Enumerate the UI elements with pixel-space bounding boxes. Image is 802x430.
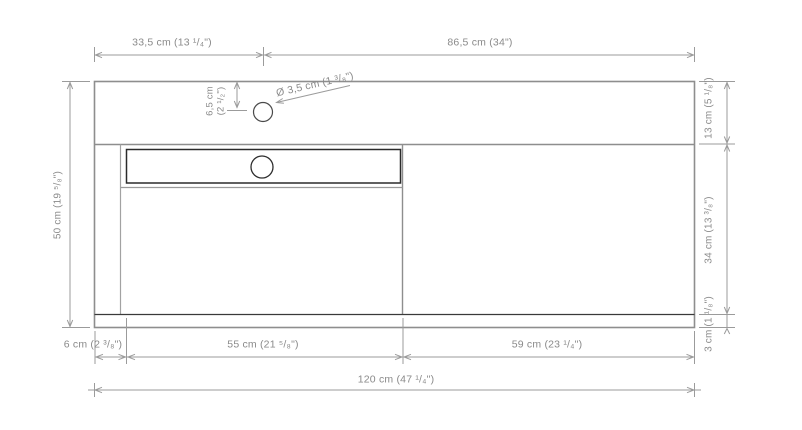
dim-faucet-offset [227,82,247,111]
dim-label-bottom-left: 6 cm (2 ³/₈") [64,340,123,351]
dim-left [62,82,90,328]
dim-label-top-right: 86,5 cm (34") [447,38,512,49]
dim-label-bottom-total: 120 cm (47 ¹/₄") [358,375,435,386]
dim-top [95,47,695,66]
dim-label-top-left: 33,5 cm (13 ¹/₄") [132,38,212,49]
drain-hole [251,156,273,178]
drawing-geometry [0,0,802,430]
cabinet-outline [95,82,695,328]
dim-label-faucet-offset-line2: (2 ¹/₂") [216,86,227,116]
dim-label-bottom-middle: 55 cm (21 ⁵/₈") [227,340,298,351]
dim-label-right-top: 13 cm (5 ¹/₈") [704,77,715,139]
dim-label-right-middle: 34 cm (13 ³/₈") [704,196,715,263]
dim-label-faucet-offset-line1: 6,5 cm [206,86,217,116]
dim-label-left-height: 50 cm (19 ⁵/₈") [53,171,64,239]
dimension-drawing: 33,5 cm (13 ¹/₄") 86,5 cm (34") 50 cm (1… [0,0,802,430]
dim-label-faucet-offset: 6,5 cm (2 ¹/₂") [206,86,227,116]
dim-label-bottom-right: 59 cm (23 ¹/₄") [512,340,583,351]
faucet-hole [254,103,273,122]
dim-label-right-bottom: 3 cm (1 ¹/₈") [704,296,715,352]
dim-bottom-segments [95,318,695,364]
